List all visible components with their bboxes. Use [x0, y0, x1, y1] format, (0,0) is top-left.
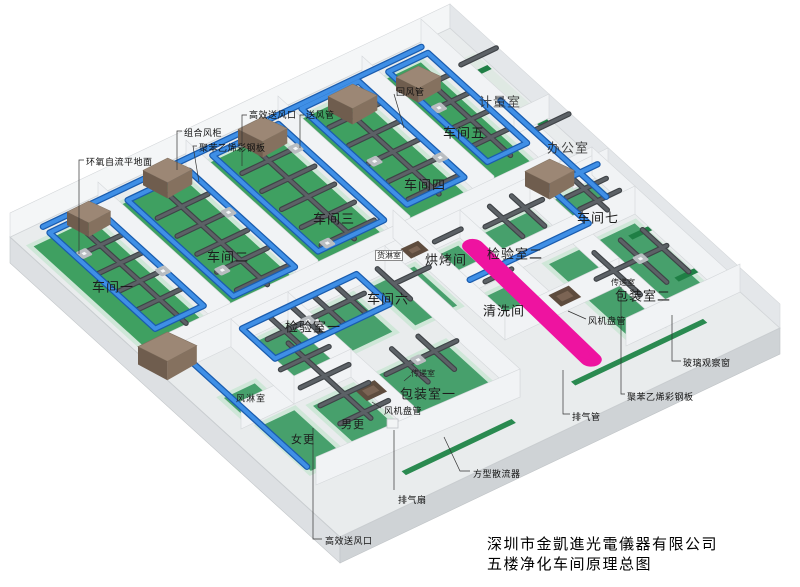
label-glass-window: 玻璃观察窗: [683, 356, 731, 369]
label-combined-ahu: 组合风柜: [184, 126, 222, 139]
label-fan-coil-right: 风机盘管: [588, 314, 626, 327]
exhaust-fan-box: [387, 419, 398, 428]
label-pass-room-right: 传递室: [611, 277, 635, 288]
cleanroom-isometric-diagram: 车间一 车间二 车间三 车间四 车间五 车间六 车间七 检验室一 检验室二 烘烤…: [0, 0, 800, 587]
label-exhaust-fan: 排气扇: [398, 493, 427, 506]
label-hepa-outlet-bottom: 高效送风口: [325, 534, 373, 547]
caption-drawing-title: 五楼净化车间原理总图: [487, 553, 652, 574]
label-exhaust-pipe: 排气管: [572, 410, 601, 423]
label-steel-panel-left: 聚苯乙烯彩钢板: [199, 141, 266, 154]
label-square-diffuser: 方型散流器: [473, 467, 521, 480]
label-pass-room-mid: 传递室: [411, 368, 435, 379]
label-hepa-outlet-top: 高效送风口: [249, 108, 297, 121]
label-supply-duct: 送风管: [306, 108, 335, 121]
label-steel-panel-right: 聚苯乙烯彩钢板: [627, 390, 694, 403]
label-return-duct: 回风管: [396, 85, 425, 98]
label-fan-coil-mid: 风机盘管: [384, 404, 422, 417]
label-epoxy-floor: 环氧自流平地面: [86, 155, 153, 168]
label-cargo-shower: 货淋室: [375, 250, 403, 261]
caption-company: 深圳市金凱進光電儀器有限公司: [487, 533, 718, 554]
